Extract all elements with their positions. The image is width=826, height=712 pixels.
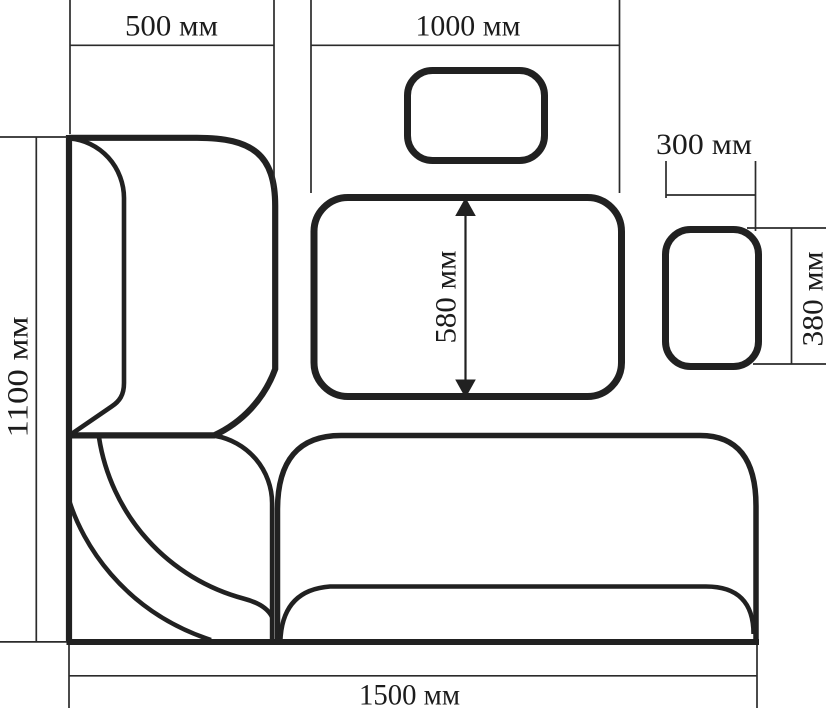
svg-text:1500 мм: 1500 мм <box>359 679 460 712</box>
svg-text:500 мм: 500 мм <box>125 9 218 42</box>
svg-text:1000 мм: 1000 мм <box>416 9 521 42</box>
svg-text:580 мм: 580 мм <box>430 250 463 343</box>
svg-text:1100 мм: 1100 мм <box>2 316 35 437</box>
svg-text:300 мм: 300 мм <box>656 128 752 161</box>
svg-text:380 мм: 380 мм <box>797 251 826 346</box>
